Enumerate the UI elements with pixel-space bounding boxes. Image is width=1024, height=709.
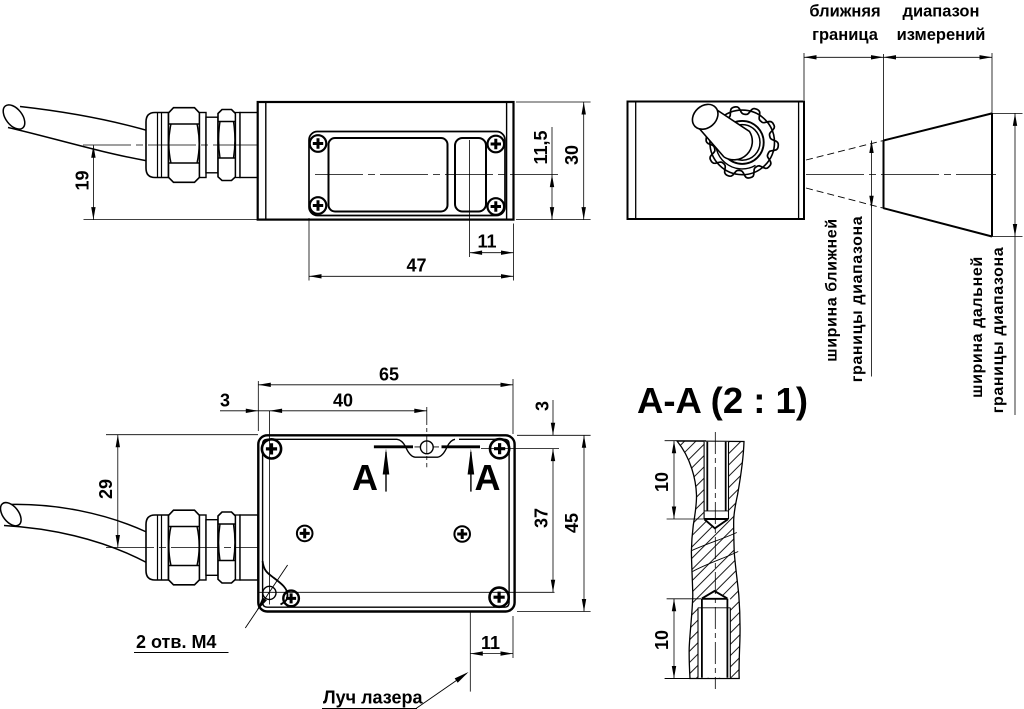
- svg-text:30: 30: [562, 145, 582, 165]
- svg-text:10: 10: [652, 630, 672, 650]
- svg-text:границы диапазона: границы диапазона: [849, 216, 866, 383]
- svg-text:3: 3: [533, 401, 553, 411]
- svg-text:11: 11: [481, 633, 500, 653]
- svg-text:45: 45: [562, 513, 582, 533]
- svg-text:ближняя: ближняя: [809, 3, 880, 21]
- svg-text:A: A: [475, 457, 501, 498]
- svg-text:10: 10: [652, 472, 672, 492]
- svg-text:3: 3: [220, 391, 230, 411]
- svg-text:ширина ближней: ширина ближней: [824, 218, 841, 361]
- svg-text:11: 11: [477, 232, 496, 252]
- svg-text:граница: граница: [812, 26, 879, 44]
- svg-text:измерений: измерений: [897, 26, 986, 44]
- svg-text:40: 40: [333, 391, 353, 411]
- svg-text:границы диапазона: границы диапазона: [990, 247, 1007, 414]
- svg-text:19: 19: [73, 170, 93, 190]
- svg-text:диапазон: диапазон: [903, 3, 980, 21]
- svg-text:ширина дальней: ширина дальней: [969, 256, 986, 398]
- svg-text:29: 29: [96, 479, 116, 499]
- svg-text:Луч лазера: Луч лазера: [323, 688, 423, 708]
- svg-text:2 отв. М4: 2 отв. М4: [136, 632, 216, 652]
- svg-text:11,5: 11,5: [531, 130, 551, 164]
- svg-text:65: 65: [379, 365, 399, 385]
- svg-text:A: A: [352, 457, 378, 498]
- svg-text:47: 47: [406, 256, 426, 276]
- svg-text:37: 37: [532, 508, 552, 528]
- svg-text:A-A (2 : 1): A-A (2 : 1): [637, 380, 808, 421]
